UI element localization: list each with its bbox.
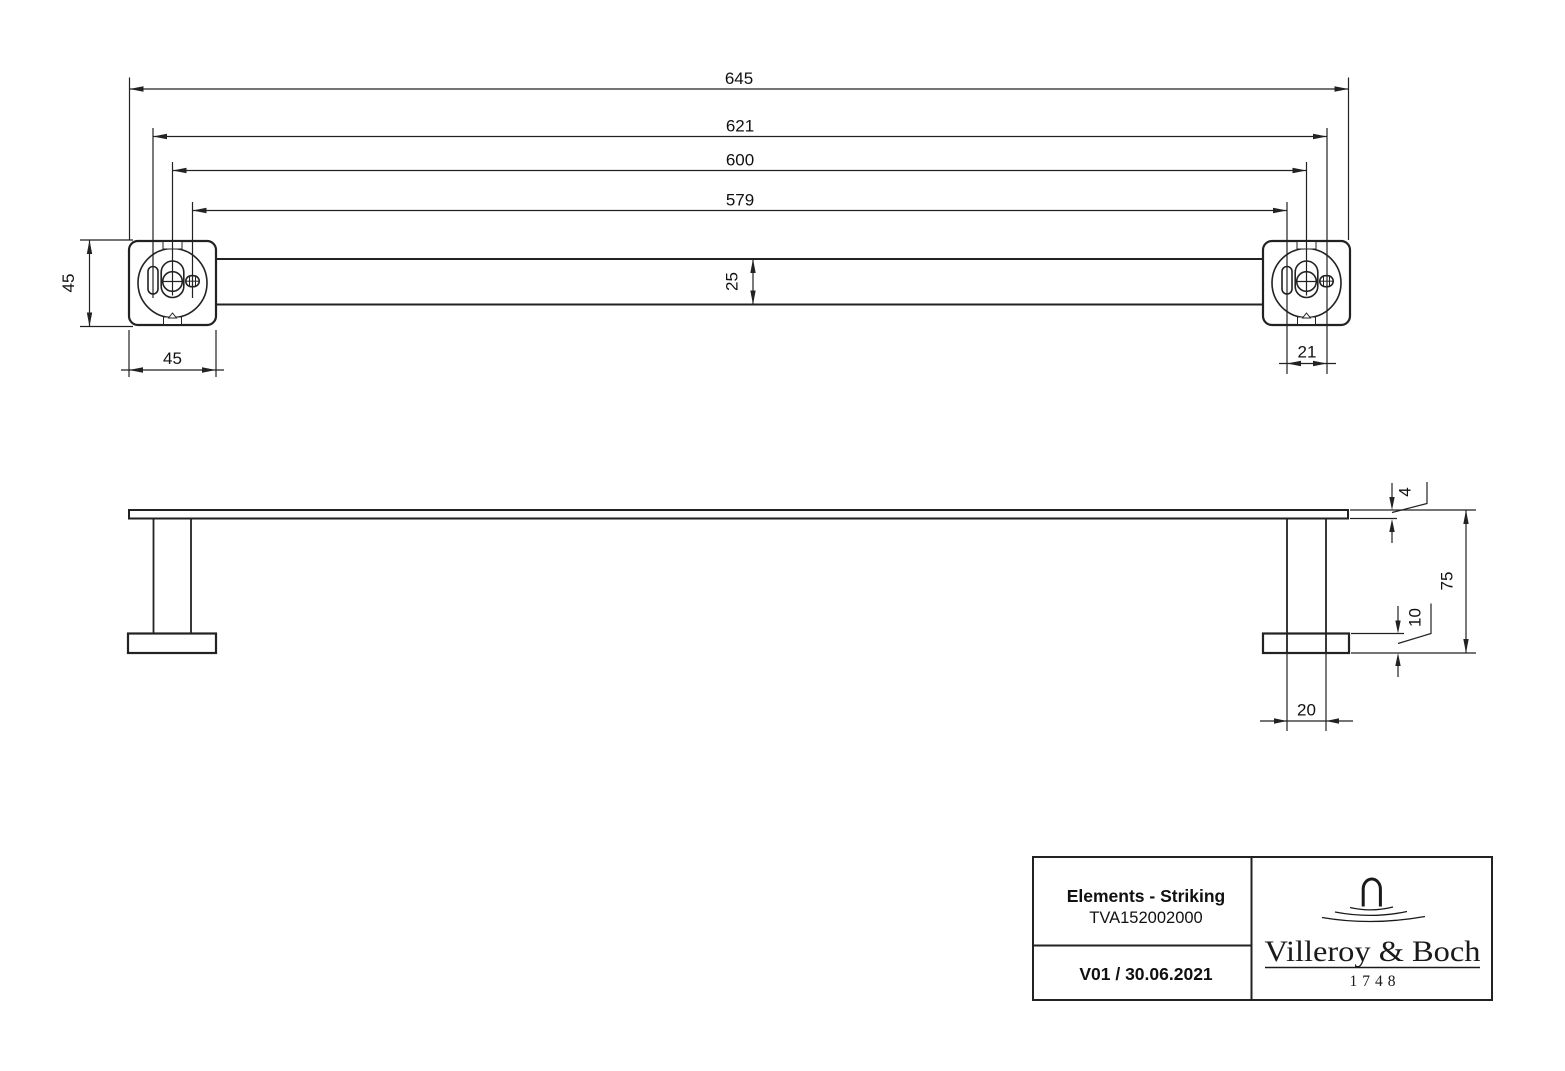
dim-645-label: 645 xyxy=(725,69,753,88)
title-block: Elements - Striking TVA152002000 V01 / 3… xyxy=(1033,857,1492,1000)
dimension-25: 25 xyxy=(723,259,756,305)
dim-4-label: 4 xyxy=(1396,487,1415,496)
dimension-621: 621 xyxy=(153,117,1327,140)
dimension-20: 20 xyxy=(1260,701,1353,724)
technical-drawing-page: 645 621 600 579 25 xyxy=(0,0,1565,1071)
dim-45-width-label: 45 xyxy=(163,349,182,368)
dimension-4: 4 xyxy=(1389,482,1427,543)
water-ripple-2 xyxy=(1335,912,1407,916)
dim-45-height-label: 45 xyxy=(59,274,78,293)
water-ripple-1 xyxy=(1350,907,1393,910)
dim-600-label: 600 xyxy=(726,151,754,170)
front-extension-lines xyxy=(80,78,1349,378)
dim-21-label: 21 xyxy=(1298,343,1317,362)
fountain-hoop-icon xyxy=(1363,879,1380,907)
side-extension-lines xyxy=(1287,510,1476,731)
dim-10-label: 10 xyxy=(1406,608,1425,627)
dim-75-label: 75 xyxy=(1438,572,1457,591)
dimension-45-width: 45 xyxy=(121,349,224,373)
right-wall-plate-profile xyxy=(1263,634,1349,654)
dimension-579: 579 xyxy=(193,191,1288,214)
bar-profile xyxy=(129,510,1348,519)
product-line-label: Elements - Striking xyxy=(1067,886,1226,906)
dim-25-label: 25 xyxy=(723,272,742,291)
dim-621-label: 621 xyxy=(726,117,754,136)
dimension-600: 600 xyxy=(173,151,1307,174)
dimension-645: 645 xyxy=(130,69,1349,92)
side-view: 4 75 10 20 xyxy=(128,482,1476,731)
brand-year-label: 1748 xyxy=(1350,973,1401,990)
front-view: 645 621 600 579 25 xyxy=(59,69,1350,377)
dimension-75: 75 xyxy=(1438,510,1469,653)
villeroy-boch-logo: Villeroy & Boch 1748 xyxy=(1265,879,1481,990)
dimension-10: 10 xyxy=(1395,604,1431,678)
article-number-label: TVA152002000 xyxy=(1089,909,1202,927)
water-ripple-3 xyxy=(1322,917,1425,922)
dim-579-label: 579 xyxy=(726,191,754,210)
dimension-45-height: 45 xyxy=(59,240,92,327)
dim-20-label: 20 xyxy=(1297,701,1316,720)
revision-date-label: V01 / 30.06.2021 xyxy=(1079,964,1213,984)
left-wall-plate-profile xyxy=(128,634,216,654)
dimension-drawing-canvas: 645 621 600 579 25 xyxy=(0,0,1565,1071)
brand-name-label: Villeroy & Boch xyxy=(1265,935,1481,968)
